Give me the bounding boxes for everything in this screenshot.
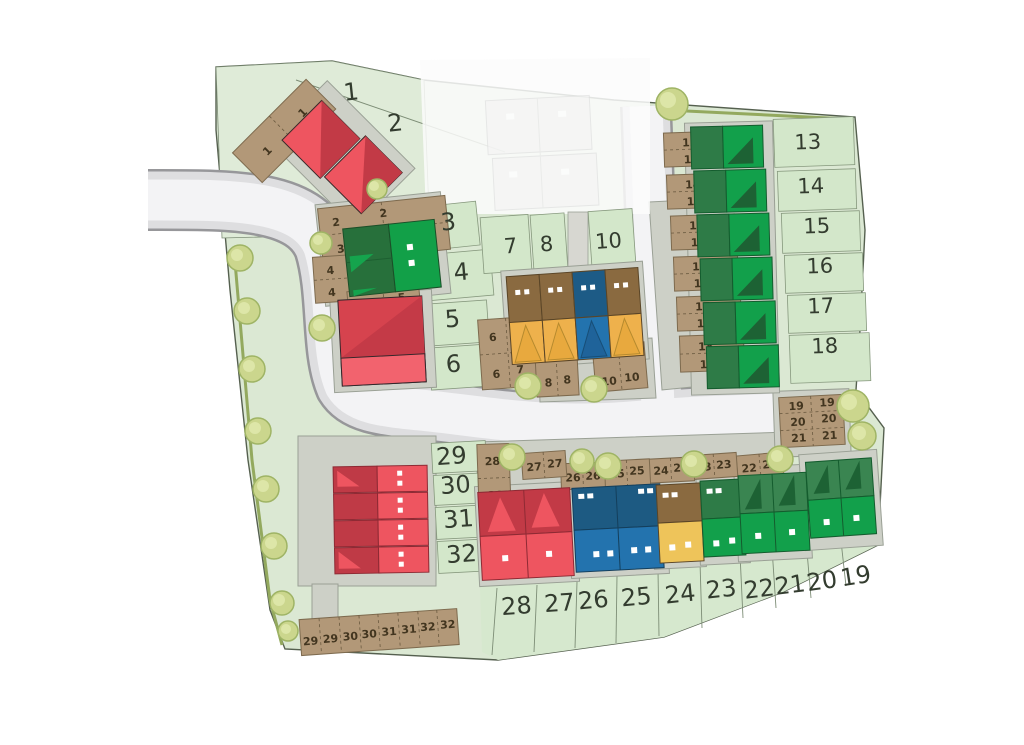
house-plots-29-32[interactable] bbox=[333, 465, 429, 574]
svg-text:8: 8 bbox=[563, 373, 571, 386]
tree-icon bbox=[767, 446, 793, 472]
footpath-strip bbox=[568, 212, 588, 270]
tree-icon bbox=[367, 179, 387, 199]
svg-text:24: 24 bbox=[653, 464, 669, 478]
svg-text:10: 10 bbox=[624, 370, 641, 384]
plot-label-1[interactable]: 1 bbox=[342, 77, 360, 106]
svg-text:27: 27 bbox=[526, 460, 542, 474]
parking-group-19-21: 1919 2020 2121 bbox=[779, 394, 846, 447]
svg-text:22: 22 bbox=[741, 461, 757, 475]
plot-label-6[interactable]: 6 bbox=[445, 350, 462, 379]
svg-text:19: 19 bbox=[788, 399, 804, 413]
plot-label-7[interactable]: 7 bbox=[503, 234, 518, 259]
house-plots-25-26[interactable] bbox=[572, 484, 664, 572]
parking-group-27: 2727 bbox=[521, 450, 567, 479]
plot-label-24[interactable]: 24 bbox=[664, 579, 697, 610]
svg-text:25: 25 bbox=[629, 464, 645, 478]
tree-icon bbox=[837, 390, 869, 422]
svg-text:8: 8 bbox=[544, 376, 552, 389]
plot-label-29[interactable]: 29 bbox=[435, 441, 467, 471]
svg-text:20: 20 bbox=[790, 415, 806, 429]
ghost-buildings bbox=[420, 58, 650, 214]
svg-text:23: 23 bbox=[716, 458, 732, 472]
svg-text:19: 19 bbox=[819, 396, 835, 410]
tree-icon bbox=[570, 449, 594, 473]
tree-icon bbox=[234, 298, 260, 324]
house-plots-5-6[interactable] bbox=[338, 296, 426, 386]
tree-icon bbox=[245, 418, 271, 444]
house-plots-21-22[interactable] bbox=[738, 472, 810, 553]
plot-label-16[interactable]: 16 bbox=[806, 254, 834, 279]
plot-label-15[interactable]: 15 bbox=[803, 214, 831, 239]
plot-label-14[interactable]: 14 bbox=[797, 174, 825, 199]
svg-text:31: 31 bbox=[401, 622, 417, 636]
svg-text:21: 21 bbox=[791, 431, 807, 445]
plot-label-8[interactable]: 8 bbox=[539, 232, 554, 257]
plot-label-31[interactable]: 31 bbox=[442, 504, 474, 534]
svg-text:29: 29 bbox=[303, 634, 319, 648]
svg-text:28: 28 bbox=[485, 455, 501, 469]
svg-text:21: 21 bbox=[822, 429, 838, 443]
tree-icon bbox=[656, 88, 688, 120]
plot-label-27[interactable]: 27 bbox=[543, 588, 575, 618]
plot-label-32[interactable]: 32 bbox=[445, 539, 477, 569]
house-plots-27-28[interactable] bbox=[478, 488, 574, 581]
plot-label-19[interactable]: 19 bbox=[838, 560, 873, 592]
tree-icon bbox=[270, 591, 294, 615]
tree-icon bbox=[515, 373, 541, 399]
plot-label-13[interactable]: 13 bbox=[794, 130, 822, 155]
plot-label-2[interactable]: 2 bbox=[386, 108, 404, 137]
house-plots-19-20[interactable] bbox=[805, 458, 876, 538]
plot-label-25[interactable]: 25 bbox=[620, 582, 653, 613]
plot-label-10[interactable]: 10 bbox=[594, 228, 622, 254]
tree-icon bbox=[848, 422, 876, 450]
svg-text:30: 30 bbox=[361, 627, 378, 641]
svg-text:6: 6 bbox=[492, 368, 501, 382]
svg-text:20: 20 bbox=[821, 412, 837, 426]
plot-label-22[interactable]: 22 bbox=[742, 573, 776, 605]
plot-label-3[interactable]: 3 bbox=[439, 207, 457, 236]
svg-text:4: 4 bbox=[328, 286, 337, 300]
plot-label-26[interactable]: 26 bbox=[577, 585, 610, 616]
tree-icon bbox=[310, 232, 332, 254]
svg-text:6: 6 bbox=[489, 331, 498, 345]
tree-icon bbox=[261, 533, 287, 559]
svg-text:29: 29 bbox=[322, 632, 338, 646]
plot-label-18[interactable]: 18 bbox=[811, 334, 839, 359]
plot-label-21[interactable]: 21 bbox=[773, 569, 807, 601]
tree-icon bbox=[227, 245, 253, 271]
plot-label-5[interactable]: 5 bbox=[444, 305, 461, 334]
house-plots-3-4[interactable] bbox=[343, 219, 442, 296]
house-plots-7-10[interactable] bbox=[506, 268, 644, 365]
svg-text:32: 32 bbox=[420, 620, 436, 634]
svg-text:27: 27 bbox=[547, 457, 563, 471]
tree-icon bbox=[595, 453, 621, 479]
tree-icon bbox=[278, 621, 298, 641]
svg-text:2: 2 bbox=[379, 207, 388, 221]
svg-text:30: 30 bbox=[342, 630, 359, 644]
tree-icon bbox=[499, 444, 525, 470]
tree-icon bbox=[581, 376, 607, 402]
plot-label-17[interactable]: 17 bbox=[807, 294, 835, 319]
svg-text:31: 31 bbox=[381, 625, 397, 639]
plot-label-23[interactable]: 23 bbox=[705, 574, 738, 605]
tree-icon bbox=[681, 451, 707, 477]
house-plot-24[interactable] bbox=[656, 483, 704, 563]
tree-icon bbox=[239, 356, 265, 382]
plot-label-20[interactable]: 20 bbox=[805, 565, 839, 597]
tree-icon bbox=[309, 315, 335, 341]
svg-text:4: 4 bbox=[326, 264, 335, 278]
svg-text:32: 32 bbox=[440, 618, 456, 632]
plot-label-28[interactable]: 28 bbox=[500, 591, 532, 621]
svg-text:2: 2 bbox=[332, 216, 341, 230]
tree-icon bbox=[253, 476, 279, 502]
site-plan: 1 1 22 33 44 55 67 67 88 1010 1313 bbox=[0, 0, 1024, 745]
site-plan-canvas: 1 1 22 33 44 55 67 67 88 1010 1313 bbox=[0, 0, 1024, 745]
plot-label-4[interactable]: 4 bbox=[452, 257, 470, 286]
plot-label-30[interactable]: 30 bbox=[439, 470, 471, 500]
